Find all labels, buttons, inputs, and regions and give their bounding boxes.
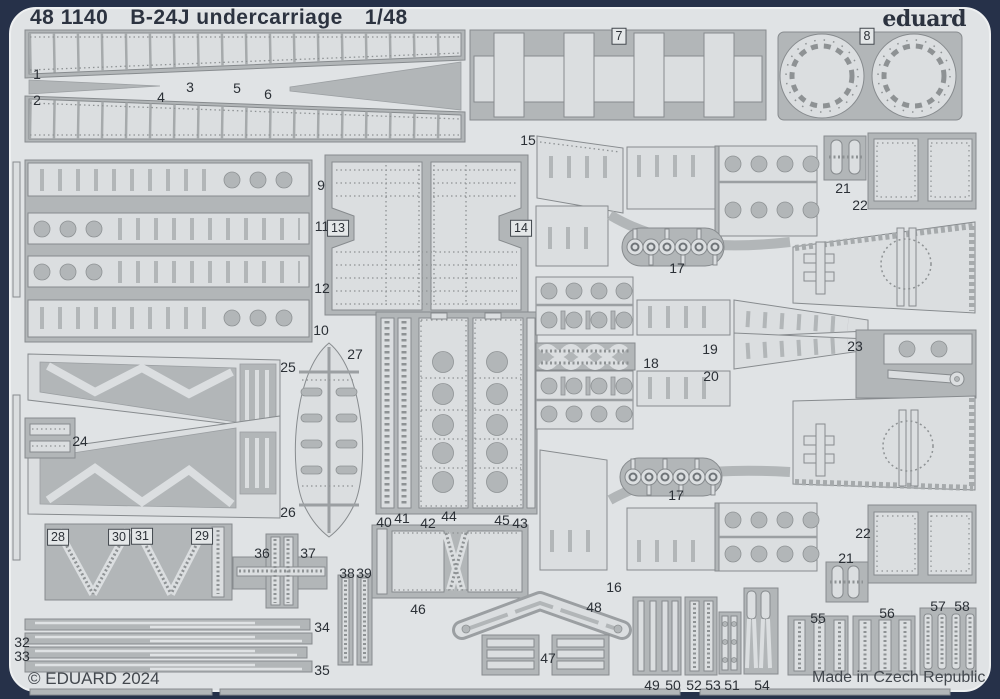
parts-40-45-panel xyxy=(376,312,537,514)
part-number-label: 52 xyxy=(686,678,702,692)
part-number-label: 14 xyxy=(510,220,532,237)
part-number-label: 29 xyxy=(191,528,213,545)
part-number-label: 25 xyxy=(280,360,296,374)
part-number-label: 57 xyxy=(930,599,946,613)
page: { "header": { "catalog_number": "48 1140… xyxy=(0,0,1000,699)
part-number-label: 42 xyxy=(420,516,436,530)
part-number-label: 21 xyxy=(835,181,851,195)
part-number-label: 30 xyxy=(108,529,130,546)
part-number-label: 23 xyxy=(847,339,863,353)
product-name: B-24J undercarriage xyxy=(130,6,343,29)
part-number-label: 24 xyxy=(72,434,88,448)
part-number-label: 39 xyxy=(356,566,372,580)
part-number-label: 12 xyxy=(314,281,330,295)
part-number-label: 54 xyxy=(754,678,770,692)
part-18-wavy-strip xyxy=(536,343,635,370)
part-number-label: 37 xyxy=(300,546,316,560)
parts-9-12-strips xyxy=(25,160,312,342)
part-number-label: 49 xyxy=(644,678,660,692)
part-number-label: 20 xyxy=(703,369,719,383)
part-number-label: 48 xyxy=(586,600,602,614)
parts-49-54 xyxy=(633,588,778,675)
header: 48 1140B-24J undercarriage1/48 xyxy=(30,6,430,30)
part-number-label: 28 xyxy=(47,529,69,546)
part-number-label: 1 xyxy=(33,67,41,81)
part-number-label: 36 xyxy=(254,546,270,560)
part-number-label: 15 xyxy=(520,133,536,147)
part-number-label: 45 xyxy=(494,513,510,527)
catalog-number: 48 1140 xyxy=(30,6,108,29)
part-number-label: 38 xyxy=(339,566,355,580)
part-number-label: 58 xyxy=(954,599,970,613)
part-number-label: 55 xyxy=(810,611,826,625)
part-24 xyxy=(25,418,75,458)
part-number-label: 53 xyxy=(705,678,721,692)
part-number-label: 51 xyxy=(724,678,740,692)
part-number-label: 9 xyxy=(317,178,325,192)
part-number-label: 32 xyxy=(14,635,30,649)
part-number-label: 34 xyxy=(314,620,330,634)
part-number-label: 10 xyxy=(313,323,329,337)
part-number-label: 46 xyxy=(410,602,426,616)
part-number-label: 8 xyxy=(860,28,875,45)
part-number-label: 4 xyxy=(157,90,165,104)
part-number-label: 44 xyxy=(441,509,457,523)
part-number-label: 17 xyxy=(669,261,685,275)
part-number-label: 5 xyxy=(233,81,241,95)
scale-label: 1/48 xyxy=(365,6,408,29)
part-number-label: 26 xyxy=(280,505,296,519)
part-number-label: 27 xyxy=(347,347,363,361)
made-in-text: Made in Czech Republic xyxy=(812,669,985,687)
part-number-label: 50 xyxy=(665,678,681,692)
part-number-label: 2 xyxy=(33,93,41,107)
part-number-label: 7 xyxy=(612,28,627,45)
parts-13-14-panels xyxy=(325,155,528,315)
part-number-label: 17 xyxy=(668,488,684,502)
part-number-label: 6 xyxy=(264,87,272,101)
part-number-label: 40 xyxy=(376,515,392,529)
part-number-label: 41 xyxy=(394,511,410,525)
part-number-label: 19 xyxy=(702,342,718,356)
part-8-wheel-discs xyxy=(778,32,962,120)
part-number-label: 21 xyxy=(838,551,854,565)
part-number-label: 18 xyxy=(643,356,659,370)
fret-bottom-rail xyxy=(30,689,950,695)
part-number-label: 56 xyxy=(879,606,895,620)
part-46 xyxy=(372,525,528,598)
part-number-label: 33 xyxy=(14,649,30,663)
part-number-label: 3 xyxy=(186,80,194,94)
part-number-label: 22 xyxy=(855,526,871,540)
part-number-label: 47 xyxy=(540,651,556,665)
part-number-label: 22 xyxy=(852,198,868,212)
part-27-leaf xyxy=(295,343,362,537)
part-number-label: 31 xyxy=(131,528,153,545)
eduard-logo: eduard xyxy=(882,6,966,32)
part-number-label: 16 xyxy=(606,580,622,594)
part-number-label: 35 xyxy=(314,663,330,677)
copyright-text: © EDUARD 2024 xyxy=(28,669,160,689)
part-number-label: 13 xyxy=(327,220,349,237)
part-number-label: 43 xyxy=(512,516,528,530)
